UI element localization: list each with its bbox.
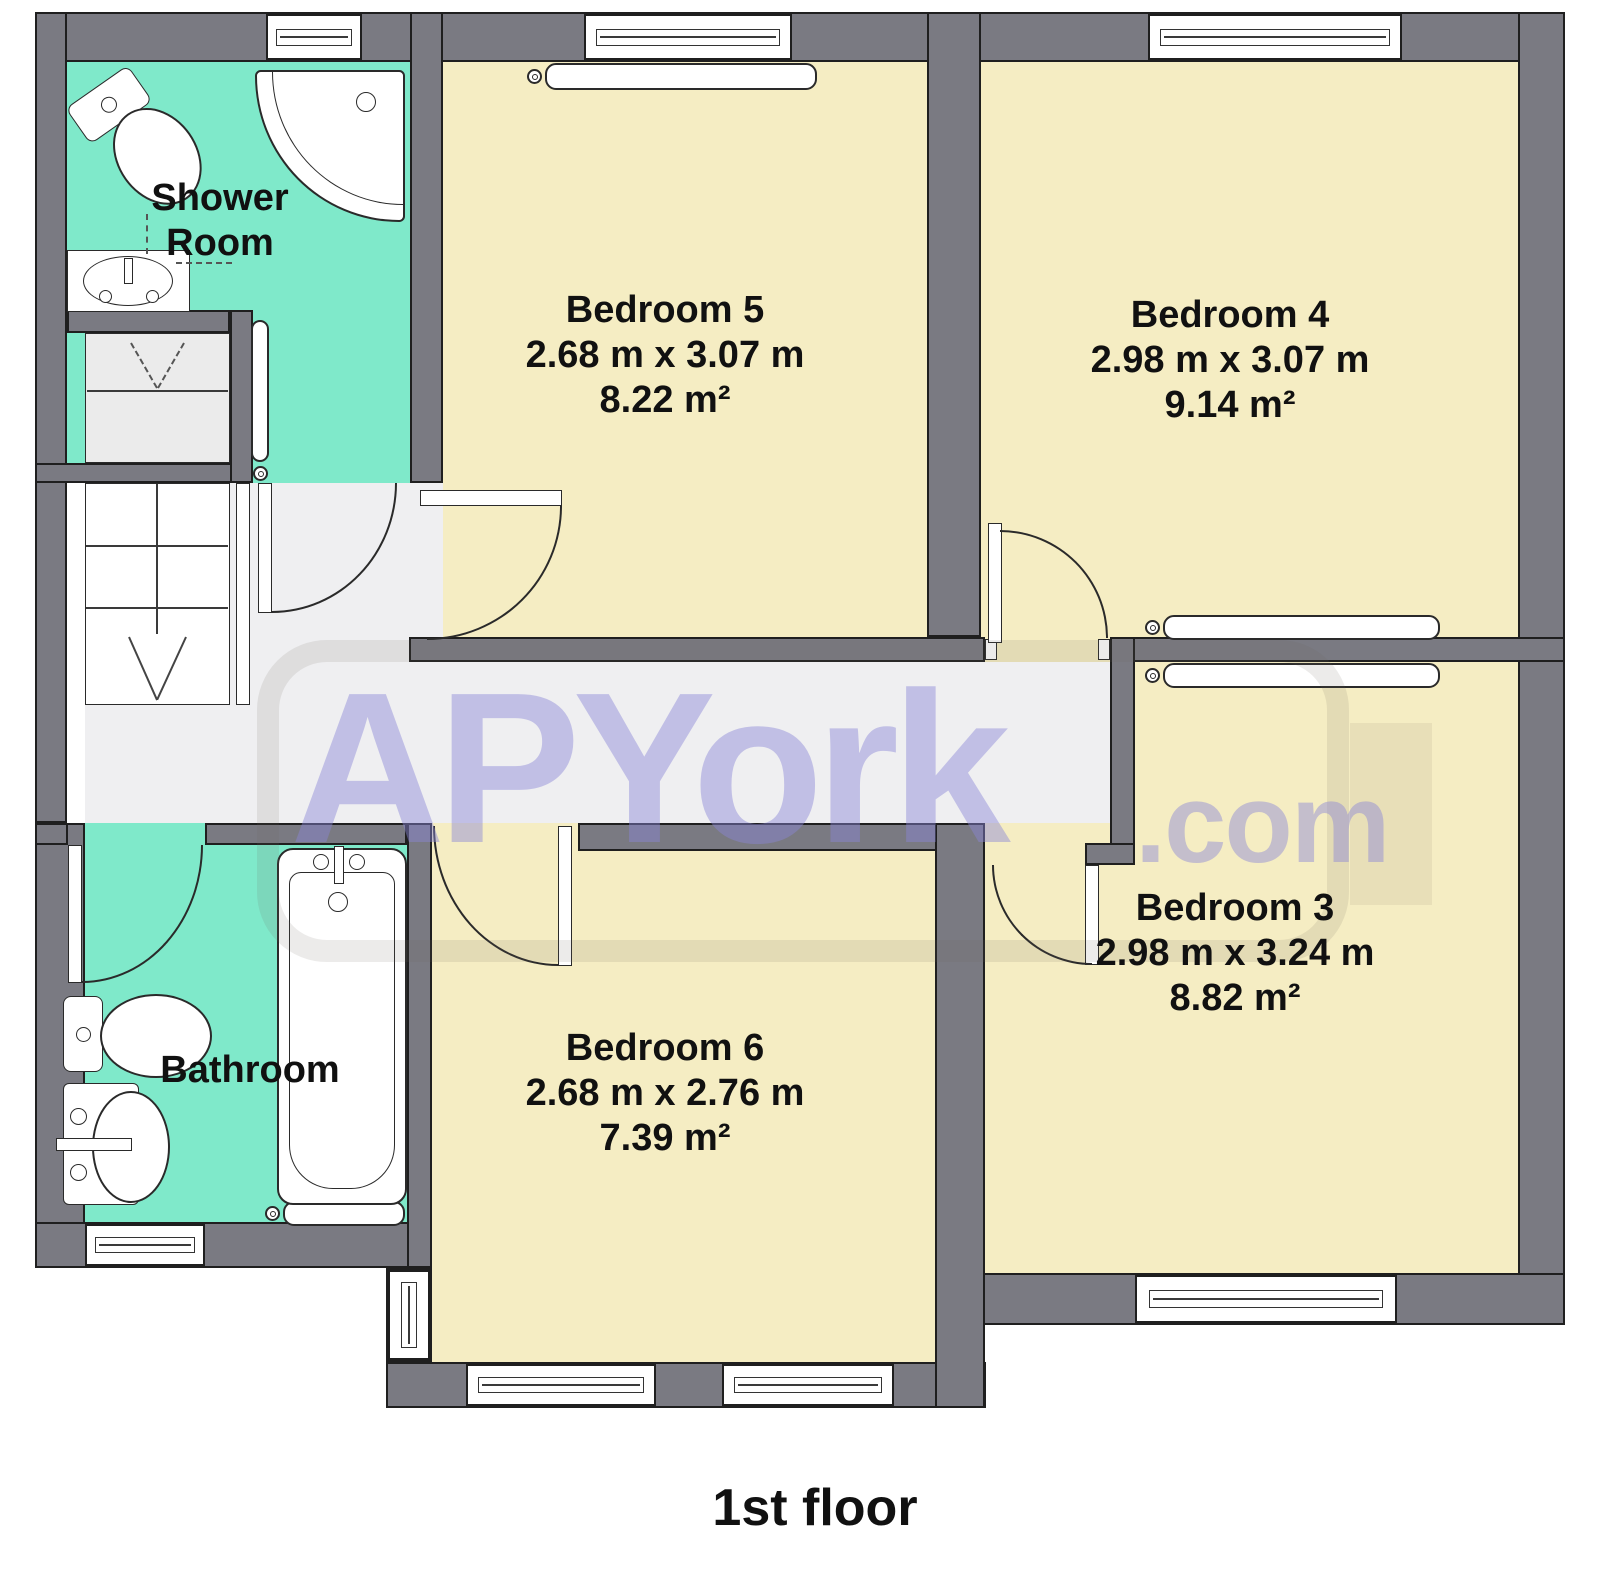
wall-shower-bedroom5 (410, 12, 443, 483)
room-dimensions: 2.98 m x 3.07 m (1020, 338, 1440, 383)
room-dimensions: 2.68 m x 2.76 m (455, 1071, 875, 1116)
wall-recess-side (230, 310, 253, 483)
sink-tap (70, 1108, 87, 1125)
door-leaf-shower-room (258, 483, 272, 613)
watermark-brand: APYork (290, 660, 1003, 875)
room-label-bathroom: Bathroom (130, 1048, 370, 1093)
radiator-valve (527, 69, 542, 84)
window-glass-line (600, 36, 776, 38)
wall-bedroom5-bedroom4 (927, 12, 981, 637)
bathroom-doorway-floor (68, 823, 205, 845)
window-glass-line (1164, 36, 1386, 38)
cupboard-shelf-line (87, 390, 228, 392)
radiator-valve (1145, 620, 1160, 635)
page-title: 1st floor (565, 1478, 1065, 1539)
room-area: 7.39 m² (455, 1116, 875, 1161)
sink-tap (146, 290, 159, 303)
window-glass-line (99, 1244, 191, 1246)
room-label-bedroom3: Bedroom 3 2.98 m x 3.24 m 8.82 m² (1020, 886, 1450, 1020)
wall-bathroom-top-left (35, 823, 68, 845)
sink-tap (99, 290, 112, 303)
toilet-flush-button (76, 1027, 91, 1042)
shower-room-corridor-floor (253, 463, 410, 483)
window-glass-line (280, 36, 348, 38)
room-label-bedroom6: Bedroom 6 2.68 m x 2.76 m 7.39 m² (455, 1026, 875, 1160)
wall-shower-bottom (35, 463, 253, 483)
room-area: 8.82 m² (1020, 976, 1450, 1021)
door-leaf-bedroom5 (420, 490, 562, 506)
window-glass-line (1153, 1298, 1379, 1300)
radiator-bedroom5 (545, 63, 817, 90)
wall-right-exterior (1518, 12, 1565, 1325)
window-glass-line (738, 1384, 878, 1386)
room-name: Bedroom 3 (1020, 886, 1450, 931)
shower-drain (356, 92, 376, 112)
window-glass-line (482, 1384, 640, 1386)
cupboard (85, 333, 230, 463)
room-dimensions: 2.98 m x 3.24 m (1020, 931, 1450, 976)
room-dimensions: 2.68 m x 3.07 m (455, 333, 875, 378)
room-name: Bedroom 4 (1020, 293, 1440, 338)
room-name: Bedroom 6 (455, 1026, 875, 1071)
floor-plan: APYork .com Shower Room Bedroom 5 2.68 m… (0, 0, 1600, 1588)
radiator-shower-room (251, 320, 269, 462)
wall-left-exterior-upper (35, 12, 67, 823)
room-name: Bedroom 5 (455, 288, 875, 333)
stairs-center-line (156, 484, 158, 634)
radiator-valve (265, 1206, 280, 1221)
wall-under-vanity (67, 310, 230, 333)
room-label-shower-room: Shower Room (130, 176, 310, 266)
door-leaf-bathroom (68, 845, 82, 983)
room-label-bedroom4: Bedroom 4 2.98 m x 3.07 m 9.14 m² (1020, 293, 1440, 427)
room-label-bedroom5: Bedroom 5 2.68 m x 3.07 m 8.22 m² (455, 288, 875, 422)
radiator-valve (253, 466, 268, 481)
sink-spout (56, 1138, 132, 1151)
stairs-banister (236, 483, 250, 705)
window-glass-line (408, 1286, 410, 1344)
sink-tap (70, 1164, 87, 1181)
watermark-suffix: .com (1135, 768, 1388, 880)
radiator-bedroom4 (1163, 615, 1440, 640)
room-area: 8.22 m² (455, 378, 875, 423)
room-area: 9.14 m² (1020, 383, 1440, 428)
